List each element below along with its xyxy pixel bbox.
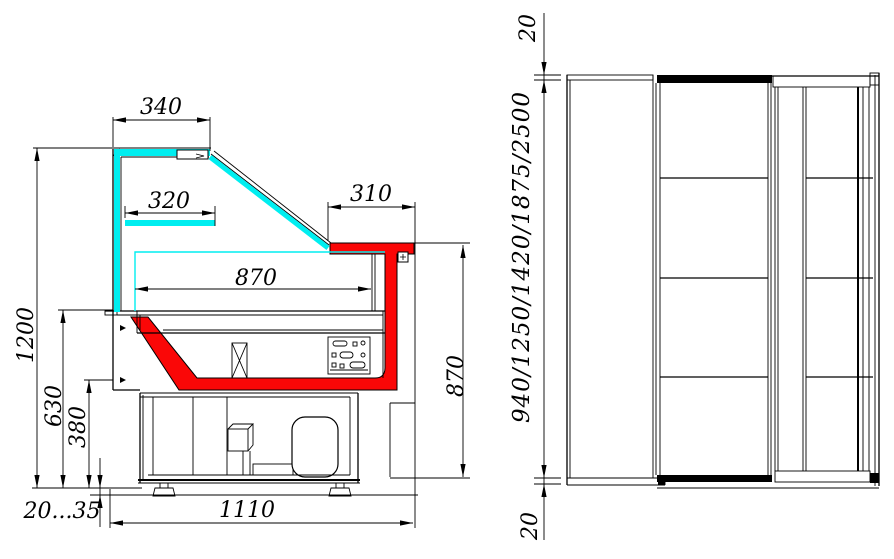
- drain-tray: [253, 464, 293, 475]
- technical-drawing: 340 320 310 870 1200 630 380 20...35 111…: [0, 0, 894, 559]
- middle-top-bar: [657, 75, 772, 83]
- sloped-glass: [210, 157, 328, 248]
- leveling-foot-right: [329, 483, 351, 496]
- right-bottom-corner-block: [870, 473, 879, 483]
- shelf-glass: [125, 220, 215, 226]
- middle-bottom-bar: [657, 475, 772, 482]
- side-view: 340 320 310 870 1200 630 380 20...35 111…: [14, 95, 470, 528]
- machine-base: [90, 393, 418, 496]
- dim-base-depth: 1110: [219, 498, 275, 523]
- dim-length-options: 940/1250/1420/1875/2500: [509, 91, 535, 423]
- dim-bottom-edge: 20: [518, 512, 543, 541]
- front-body-lines: [567, 73, 879, 488]
- dim-feet-range: 20...35: [23, 499, 101, 524]
- case-internals: [232, 337, 370, 378]
- dim-overall-height: 1200: [14, 307, 39, 363]
- front-view-dimensions: 20 940/1250/1420/1875/2500 20: [509, 13, 561, 541]
- rear-glass-panel: [114, 150, 120, 312]
- canopy-lamp-box: [177, 150, 208, 159]
- dim-rear-height: 870: [444, 355, 469, 397]
- dim-worktop-depth: 310: [350, 182, 392, 207]
- compressor: [292, 417, 338, 477]
- dim-deck-width: 870: [235, 266, 277, 291]
- dim-deck-height: 630: [42, 385, 67, 427]
- dim-base-height: 380: [66, 406, 91, 448]
- vent-panel: [328, 337, 370, 374]
- left-panel-top-strip: [567, 75, 653, 80]
- drawing-canvas: 340 320 310 870 1200 630 380 20...35 111…: [0, 0, 894, 559]
- right-top-strip: [773, 76, 870, 87]
- right-bottom-strip: [775, 471, 870, 482]
- leveling-foot-left: [153, 483, 175, 496]
- starter-box: [228, 429, 248, 451]
- dim-shelf-width: 320: [148, 189, 190, 214]
- front-view: 20 940/1250/1420/1875/2500 20: [509, 13, 879, 541]
- dim-canopy-width: 340: [140, 95, 182, 120]
- dim-top-edge: 20: [516, 14, 541, 43]
- right-top-corner-block: [870, 73, 879, 85]
